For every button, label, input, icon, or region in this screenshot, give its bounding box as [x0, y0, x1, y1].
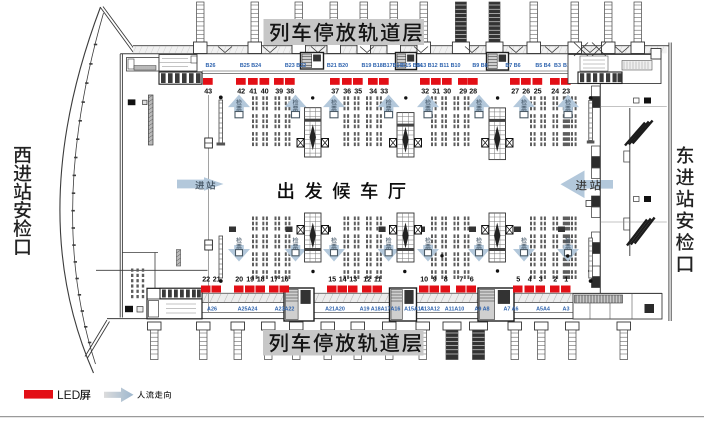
svg-text:21: 21 [213, 275, 221, 284]
svg-text:19: 19 [246, 275, 254, 284]
svg-text:B26: B26 [206, 63, 216, 69]
svg-text:A21A20: A21A20 [325, 306, 345, 312]
svg-text:10: 10 [420, 275, 428, 284]
svg-text:36: 36 [343, 86, 351, 95]
svg-text:31: 31 [432, 86, 440, 95]
svg-text:20: 20 [235, 275, 243, 284]
svg-text:33: 33 [380, 86, 388, 95]
svg-text:30: 30 [443, 86, 451, 95]
svg-text:29: 29 [459, 86, 467, 95]
svg-text:17: 17 [270, 275, 278, 284]
svg-text:B21 B20: B21 B20 [327, 63, 348, 69]
svg-text:16: 16 [281, 275, 289, 284]
svg-text:B7 B6: B7 B6 [505, 63, 520, 69]
svg-text:LED: LED [57, 388, 81, 402]
svg-text:A13A12: A13A12 [420, 306, 440, 312]
svg-text:18: 18 [257, 275, 265, 284]
svg-text:39: 39 [275, 86, 283, 95]
svg-text:3: 3 [539, 275, 543, 284]
svg-text:B9 B8: B9 B8 [472, 63, 487, 69]
svg-text:B19 B18B17B16: B19 B18B17B16 [361, 63, 402, 69]
svg-text:42: 42 [237, 86, 245, 95]
svg-text:A23A22: A23A22 [275, 306, 295, 312]
svg-text:A26: A26 [207, 306, 217, 312]
svg-text:B23 B22: B23 B22 [285, 63, 306, 69]
svg-text:6: 6 [470, 275, 474, 284]
svg-text:8: 8 [444, 275, 448, 284]
svg-text:23: 23 [562, 86, 570, 95]
svg-text:4: 4 [528, 275, 532, 284]
svg-text:A19 A18A17A16: A19 A18A17A16 [360, 306, 401, 312]
svg-text:22: 22 [202, 275, 210, 284]
svg-text:5: 5 [516, 275, 520, 284]
svg-text:24: 24 [551, 86, 559, 95]
svg-text:2: 2 [553, 275, 557, 284]
svg-text:A7 A6: A7 A6 [503, 306, 518, 312]
svg-text:B3: B3 [554, 63, 561, 69]
svg-text:38: 38 [286, 86, 294, 95]
svg-text:12: 12 [363, 275, 371, 284]
svg-text:34: 34 [369, 86, 377, 95]
svg-text:41: 41 [249, 86, 257, 95]
svg-text:40: 40 [261, 86, 269, 95]
svg-text:1: 1 [564, 275, 568, 284]
svg-text:35: 35 [354, 86, 362, 95]
svg-text:14: 14 [339, 275, 347, 284]
svg-text:43: 43 [204, 86, 212, 95]
svg-text:26: 26 [522, 86, 530, 95]
svg-text:A5A4: A5A4 [536, 306, 550, 312]
svg-text:A11A10: A11A10 [445, 306, 464, 312]
svg-text:27: 27 [511, 86, 519, 95]
svg-text:A3: A3 [563, 306, 570, 312]
svg-text:A9 A8: A9 A8 [474, 306, 489, 312]
svg-text:11: 11 [374, 275, 382, 284]
svg-text:B13 B12: B13 B12 [416, 63, 437, 69]
svg-text:32: 32 [421, 86, 429, 95]
svg-text:B25 B24: B25 B24 [240, 63, 261, 69]
svg-text:13: 13 [349, 275, 357, 284]
svg-text:28: 28 [469, 86, 477, 95]
svg-text:15: 15 [328, 275, 336, 284]
svg-text:37: 37 [331, 86, 339, 95]
svg-text:B11 B10: B11 B10 [440, 63, 461, 69]
svg-text:B5 B4: B5 B4 [535, 63, 550, 69]
svg-text:9: 9 [433, 275, 437, 284]
svg-text:25: 25 [534, 86, 542, 95]
svg-text:7: 7 [459, 275, 463, 284]
svg-text:A25A24: A25A24 [238, 306, 258, 312]
